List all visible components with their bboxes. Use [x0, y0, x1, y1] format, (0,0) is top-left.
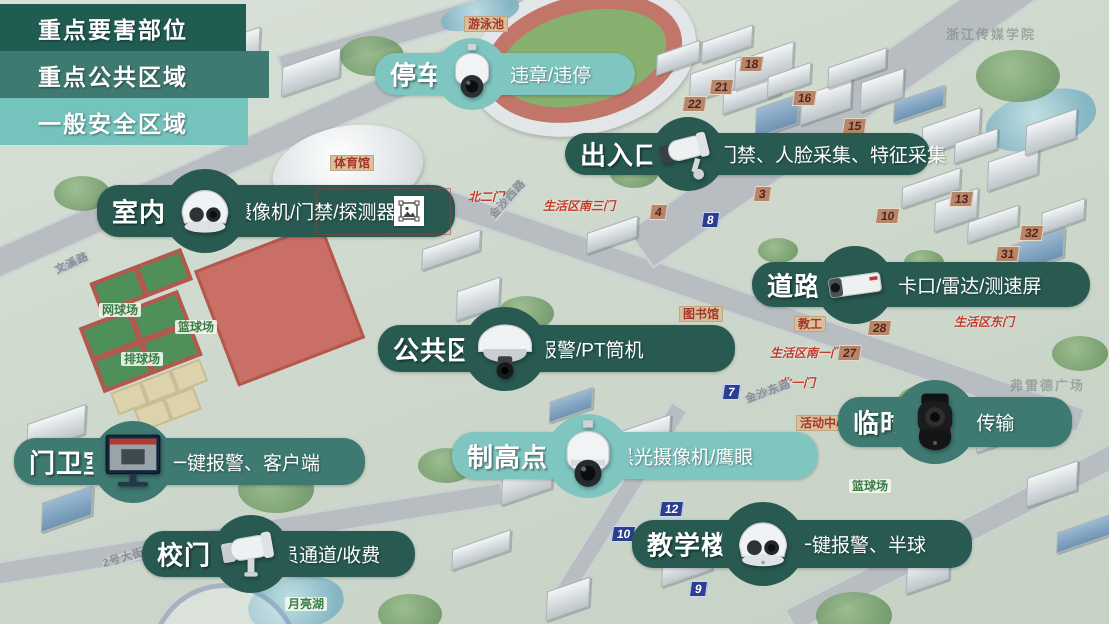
- speed-dome-camera-icon: [436, 38, 508, 110]
- building: [1056, 512, 1109, 554]
- map-marker: 12: [659, 501, 685, 517]
- map-marker: 3: [753, 186, 772, 202]
- map-label: 排球场: [121, 352, 163, 366]
- box-camera-icon: [816, 246, 894, 324]
- legend-label: 重点要害部位: [38, 11, 188, 45]
- legend-label: 重点公共区域: [38, 58, 188, 92]
- callout-desc: 卡口/雷达/测速屏: [898, 271, 1042, 298]
- map-label: 网球场: [99, 303, 141, 317]
- callout-teaching-building: 教学楼 一键报警、半球: [632, 520, 972, 568]
- callout-label: 出入口: [580, 136, 661, 173]
- callout-label: 公共区: [393, 330, 474, 367]
- map-marker: 13: [949, 191, 975, 207]
- callout-desc: 报警/PT筒机: [538, 335, 644, 362]
- map-label: 生活区南三门: [543, 200, 615, 212]
- callout-guard-room: 门卫室 一键报警、客户端: [14, 438, 365, 485]
- callout-desc: 黑光摄像机/鹰眼: [615, 442, 753, 469]
- map-marker: 32: [1019, 225, 1045, 241]
- greenery-patch: [1052, 336, 1108, 371]
- callout-indoor: 室内 摄像机/门禁/探测器: [97, 185, 455, 237]
- map-label: 生活区东门: [954, 316, 1014, 328]
- portable-camera-icon: [893, 380, 977, 464]
- legend-item-key-public: 重点公共区域: [0, 51, 269, 98]
- map-marker: 7: [722, 384, 741, 400]
- callout-desc: 摄像机/门禁/探测器: [233, 198, 396, 225]
- map-label: 体育馆: [330, 155, 374, 171]
- callout-public-area: 公共区 报警/PT筒机: [378, 325, 735, 372]
- callout-road: 道路 卡口/雷达/测速屏: [752, 262, 1090, 307]
- multi-dome-camera-icon: [463, 307, 547, 391]
- campus-security-map: 游泳池浙江传媒学院体育馆北二门生活区南三门金沙西路文溪路网球场篮球场排球场图书馆…: [0, 0, 1109, 624]
- map-marker: 22: [682, 96, 708, 112]
- callout-label: 校门: [157, 536, 211, 573]
- map-label: 篮球场: [849, 479, 891, 493]
- map-marker: 27: [837, 345, 863, 361]
- map-marker: 28: [867, 320, 893, 336]
- building: [545, 576, 590, 621]
- map-marker: 21: [709, 79, 735, 95]
- map-marker: 31: [995, 246, 1021, 262]
- monitor-client-icon: [92, 421, 174, 503]
- callout-desc: 一键报警、客户端: [168, 448, 320, 475]
- map-marker: 9: [689, 581, 708, 597]
- greenery-patch: [758, 238, 798, 263]
- map-marker: 8: [701, 212, 720, 228]
- ptz-camera-icon: [546, 414, 630, 498]
- turret-camera-icon: [721, 502, 805, 586]
- callout-label: 教学楼: [647, 526, 728, 563]
- callout-parking: 停车 违章/违停: [375, 53, 635, 95]
- callout-desc: 门禁、人脸采集、特征采集: [718, 141, 946, 168]
- callout-vantage-point: 制高点 黑光摄像机/鹰眼: [452, 432, 818, 479]
- map-label: 月亮湖: [285, 597, 327, 611]
- callout-label: 室内: [112, 193, 166, 230]
- building: [41, 485, 94, 533]
- legend-label: 一般安全区域: [38, 105, 188, 139]
- turret-camera-icon: [163, 169, 247, 253]
- map-label: 浙江传媒学院: [946, 28, 1036, 41]
- callout-entrance-exit: 出入口 门禁、人脸采集、特征采集: [565, 133, 930, 175]
- map-marker: 10: [875, 208, 901, 224]
- building: [451, 529, 511, 571]
- map-label: 篮球场: [175, 320, 217, 334]
- legend-item-critical: 重点要害部位: [0, 4, 246, 51]
- map-label: 图书馆: [679, 306, 723, 322]
- map-label: 生活区南一门: [770, 347, 842, 359]
- map-marker: 15: [842, 118, 868, 134]
- map-marker: 16: [792, 90, 818, 106]
- callout-label: 制高点: [467, 437, 548, 474]
- map-label: 文溪路: [54, 251, 91, 276]
- greenery-patch: [976, 50, 1060, 102]
- map-marker: 4: [649, 204, 668, 220]
- callout-label: 道路: [767, 266, 821, 303]
- map-label: 游泳池: [464, 16, 508, 32]
- map-label: 金沙东路: [744, 379, 793, 406]
- callout-school-gate: 校门 员通道/收费: [142, 531, 415, 577]
- map-marker: 18: [739, 56, 765, 72]
- bullet-camera-icon: [212, 515, 290, 593]
- greenery-patch: [378, 594, 442, 624]
- callout-desc: 员通道/收费: [280, 541, 380, 568]
- callout-desc: 一键报警、半球: [793, 531, 926, 558]
- callout-temporary: 临时 4G传输: [838, 397, 1072, 447]
- legend-item-general: 一般安全区域: [0, 98, 248, 145]
- callout-desc: 违章/违停: [510, 61, 591, 88]
- bullet-camera-icon: [651, 117, 725, 191]
- map-label: 弗雷德广场: [1010, 379, 1085, 392]
- image-placeholder-icon: [394, 196, 424, 226]
